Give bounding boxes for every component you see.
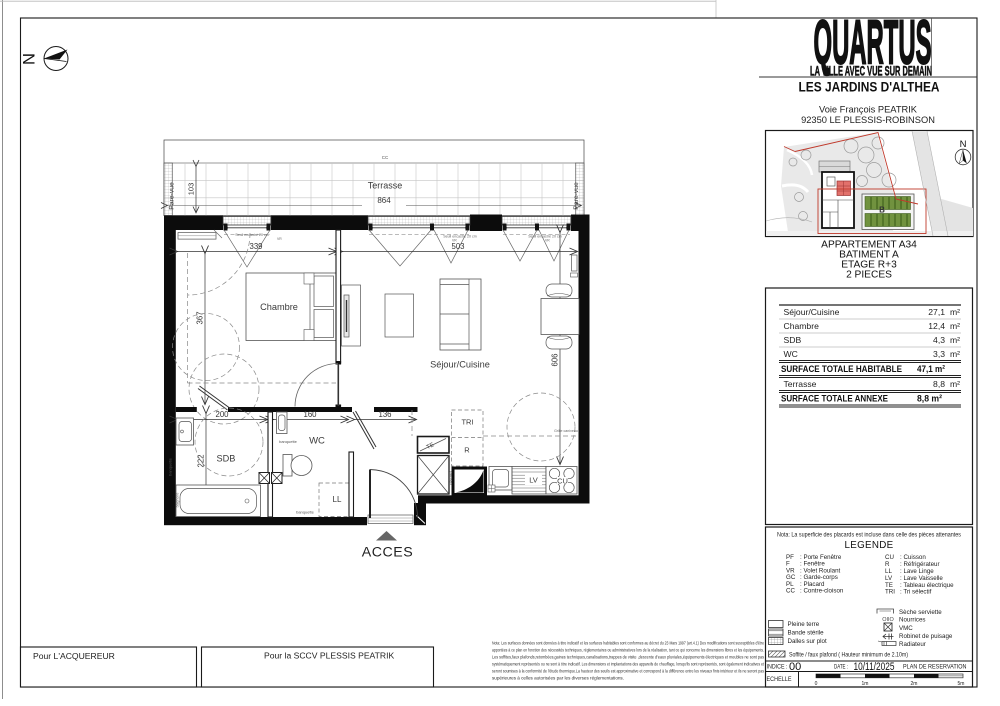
svg-text:: Contre-cloison: : Contre-cloison	[800, 588, 844, 595]
svg-text:: Lave Vaisselle: : Lave Vaisselle	[900, 575, 943, 582]
svg-text:LES JARDINS D'ALTHEA: LES JARDINS D'ALTHEA	[799, 80, 940, 95]
svg-text:Les soffites,faux plafonds,r: Les soffites,faux plafonds,retombées,gai…	[492, 655, 765, 660]
svg-text:Seuil encastré 20 cm: Seuil encastré 20 cm	[235, 233, 269, 237]
svg-text:SDB: SDB	[217, 454, 236, 464]
svg-text:Bande stérile: Bande stérile	[788, 630, 825, 637]
svg-text:supérieures à celles autorisée: supérieures à celles autorisées par les …	[492, 676, 624, 681]
svg-text:CC: CC	[786, 588, 795, 595]
svg-text:N: N	[960, 139, 967, 150]
svg-text:Soffite / faux plafond ( Haute: Soffite / faux plafond ( Hauteur minimum…	[789, 652, 908, 659]
svg-text:4,3: 4,3	[933, 335, 945, 345]
svg-text:CU: CU	[557, 477, 568, 486]
svg-text:m²: m²	[950, 321, 960, 331]
svg-text:banquette: banquette	[279, 439, 298, 444]
svg-text:banquette: banquette	[168, 457, 173, 476]
svg-text:apportées à ce plan en foncti: apportées à ce plan en fonction des néce…	[492, 648, 764, 653]
svg-text:N: N	[21, 53, 39, 65]
svg-text:CC: CC	[382, 155, 389, 160]
svg-text:8,8: 8,8	[933, 379, 945, 389]
svg-text:PLAN DE RESERVATION: PLAN DE RESERVATION	[903, 664, 967, 671]
svg-text:VR: VR	[545, 239, 550, 243]
svg-text:m²: m²	[950, 349, 960, 359]
svg-text:WC: WC	[784, 349, 798, 359]
svg-text:WC: WC	[309, 436, 325, 447]
svg-text:: Cuisson: : Cuisson	[900, 554, 926, 561]
svg-text:LL: LL	[885, 568, 892, 575]
svg-text:ACCES: ACCES	[362, 545, 413, 561]
svg-text:TRI: TRI	[461, 418, 473, 427]
svg-text:Chambre: Chambre	[784, 321, 820, 331]
svg-text:Nota: Les surfaces données son: Nota: Les surfaces données sont données …	[492, 641, 764, 646]
svg-text:606: 606	[551, 353, 560, 366]
svg-text:INDICE :: INDICE :	[767, 664, 788, 671]
svg-text:VR: VR	[277, 237, 282, 241]
svg-text:1m: 1m	[862, 681, 869, 687]
svg-text:Pleine terre: Pleine terre	[788, 621, 820, 628]
svg-text:3,3: 3,3	[933, 349, 945, 359]
svg-text:OIIO: OIIO	[882, 617, 894, 623]
svg-text:m²: m²	[950, 379, 960, 389]
svg-text:47,1 m²: 47,1 m²	[917, 364, 945, 375]
svg-text:DATE :: DATE :	[834, 664, 848, 671]
svg-text:92350 LE PLESSIS-ROBINSON: 92350 LE PLESSIS-ROBINSON	[801, 115, 935, 125]
svg-text:Voie François PEATRIK: Voie François PEATRIK	[819, 105, 918, 115]
svg-text:m²: m²	[950, 335, 960, 345]
svg-text:R: R	[885, 561, 890, 568]
svg-text:5m: 5m	[958, 681, 965, 687]
svg-text:Pare-vue: Pare-vue	[573, 182, 580, 210]
svg-text:136: 136	[378, 410, 391, 419]
svg-text:Chambre: Chambre	[260, 302, 298, 312]
svg-text:Séjour/Cuisine: Séjour/Cuisine	[784, 307, 840, 317]
svg-text:ECHELLE: ECHELLE	[767, 676, 792, 683]
svg-text:m²: m²	[950, 307, 960, 317]
svg-text:Terrasse: Terrasse	[368, 181, 403, 191]
svg-text:: Réfrigérateur: : Réfrigérateur	[900, 561, 940, 568]
svg-text:VMC: VMC	[899, 625, 913, 632]
svg-text:339: 339	[249, 242, 262, 251]
svg-text:LV: LV	[529, 476, 538, 485]
svg-text:LEGENDE: LEGENDE	[845, 540, 894, 551]
svg-text:SURFACE TOTALE ANNEXE: SURFACE TOTALE ANNEXE	[781, 394, 888, 405]
svg-text:Robinet de puisage: Robinet de puisage	[899, 633, 953, 640]
svg-text:Dalles sur plot: Dalles sur plot	[788, 638, 827, 645]
svg-text:SURFACE TOTALE HABITABLE: SURFACE TOTALE HABITABLE	[781, 364, 903, 375]
svg-text:R: R	[464, 446, 470, 455]
svg-text:Nota: La superficie des placar: Nota: La superficie des placards est inc…	[777, 532, 962, 539]
svg-text:200: 200	[215, 410, 229, 419]
svg-text:12,4: 12,4	[928, 321, 945, 331]
svg-text:Nourrices: Nourrices	[899, 617, 925, 624]
svg-text:baignoire: baignoire	[176, 493, 180, 508]
svg-text:Grille caniveau: Grille caniveau	[554, 429, 578, 433]
svg-text:LV: LV	[885, 575, 893, 582]
svg-text:Pour la SCCV PLESSIS PEATRIK: Pour la SCCV PLESSIS PEATRIK	[264, 651, 394, 661]
svg-text:systématiquement représentés o: systématiquement représentés ou ne sont …	[492, 662, 765, 667]
svg-text:160: 160	[303, 410, 317, 419]
svg-text:0: 0	[815, 681, 818, 687]
svg-text:: Lave Linge: : Lave Linge	[900, 568, 934, 575]
svg-text:Radiateur: Radiateur	[899, 641, 926, 648]
svg-text:Pare-vue: Pare-vue	[169, 182, 176, 210]
svg-text:SDB: SDB	[784, 335, 802, 345]
svg-text:Seuil encastré 20 cm: Seuil encastré 20 cm	[443, 235, 477, 239]
svg-text:Sèche serviette: Sèche serviette	[899, 609, 942, 616]
svg-text:103: 103	[187, 183, 196, 196]
svg-text:27,1: 27,1	[928, 307, 945, 317]
svg-text:CU: CU	[885, 554, 894, 561]
svg-text:2 PIECES: 2 PIECES	[846, 270, 892, 281]
svg-text:8,8 m²: 8,8 m²	[917, 394, 942, 405]
svg-text:Pour L'ACQUEREUR: Pour L'ACQUEREUR	[33, 651, 115, 661]
svg-text:B: B	[879, 206, 885, 215]
svg-text:2m: 2m	[911, 681, 918, 687]
svg-text:banquette: banquette	[296, 510, 315, 515]
svg-text:Séjour/Cuisine: Séjour/Cuisine	[430, 360, 490, 370]
svg-text:Seuil encastré 20 cm: Seuil encastré 20 cm	[528, 235, 562, 239]
svg-text:503: 503	[451, 242, 464, 251]
svg-text:Terrasse: Terrasse	[784, 379, 817, 389]
svg-text:LL: LL	[333, 495, 342, 504]
svg-text:864: 864	[377, 196, 391, 205]
svg-text:seront soumises à la conformit: seront soumises à la conformité de l'étu…	[492, 669, 765, 674]
svg-text:TRI: TRI	[885, 589, 895, 596]
svg-text:: Tri sélectif: : Tri sélectif	[900, 589, 932, 596]
